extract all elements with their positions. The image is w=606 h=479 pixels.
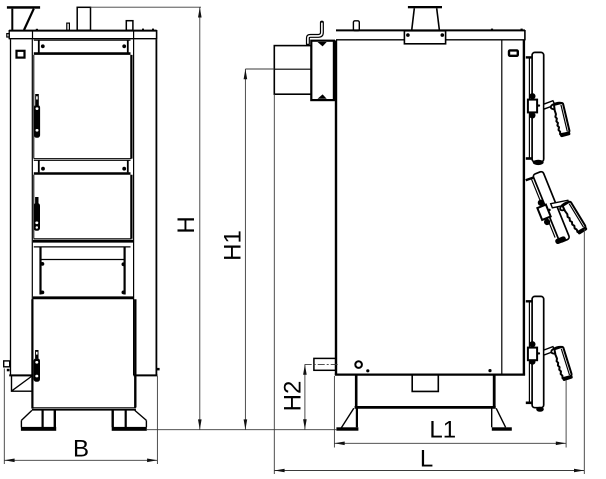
svg-text:B: B xyxy=(73,436,89,463)
svg-text:H: H xyxy=(173,216,200,233)
svg-text:H1: H1 xyxy=(220,230,247,261)
svg-text:H2: H2 xyxy=(280,381,307,412)
svg-text:L1: L1 xyxy=(429,417,456,444)
svg-text:L: L xyxy=(420,446,433,473)
